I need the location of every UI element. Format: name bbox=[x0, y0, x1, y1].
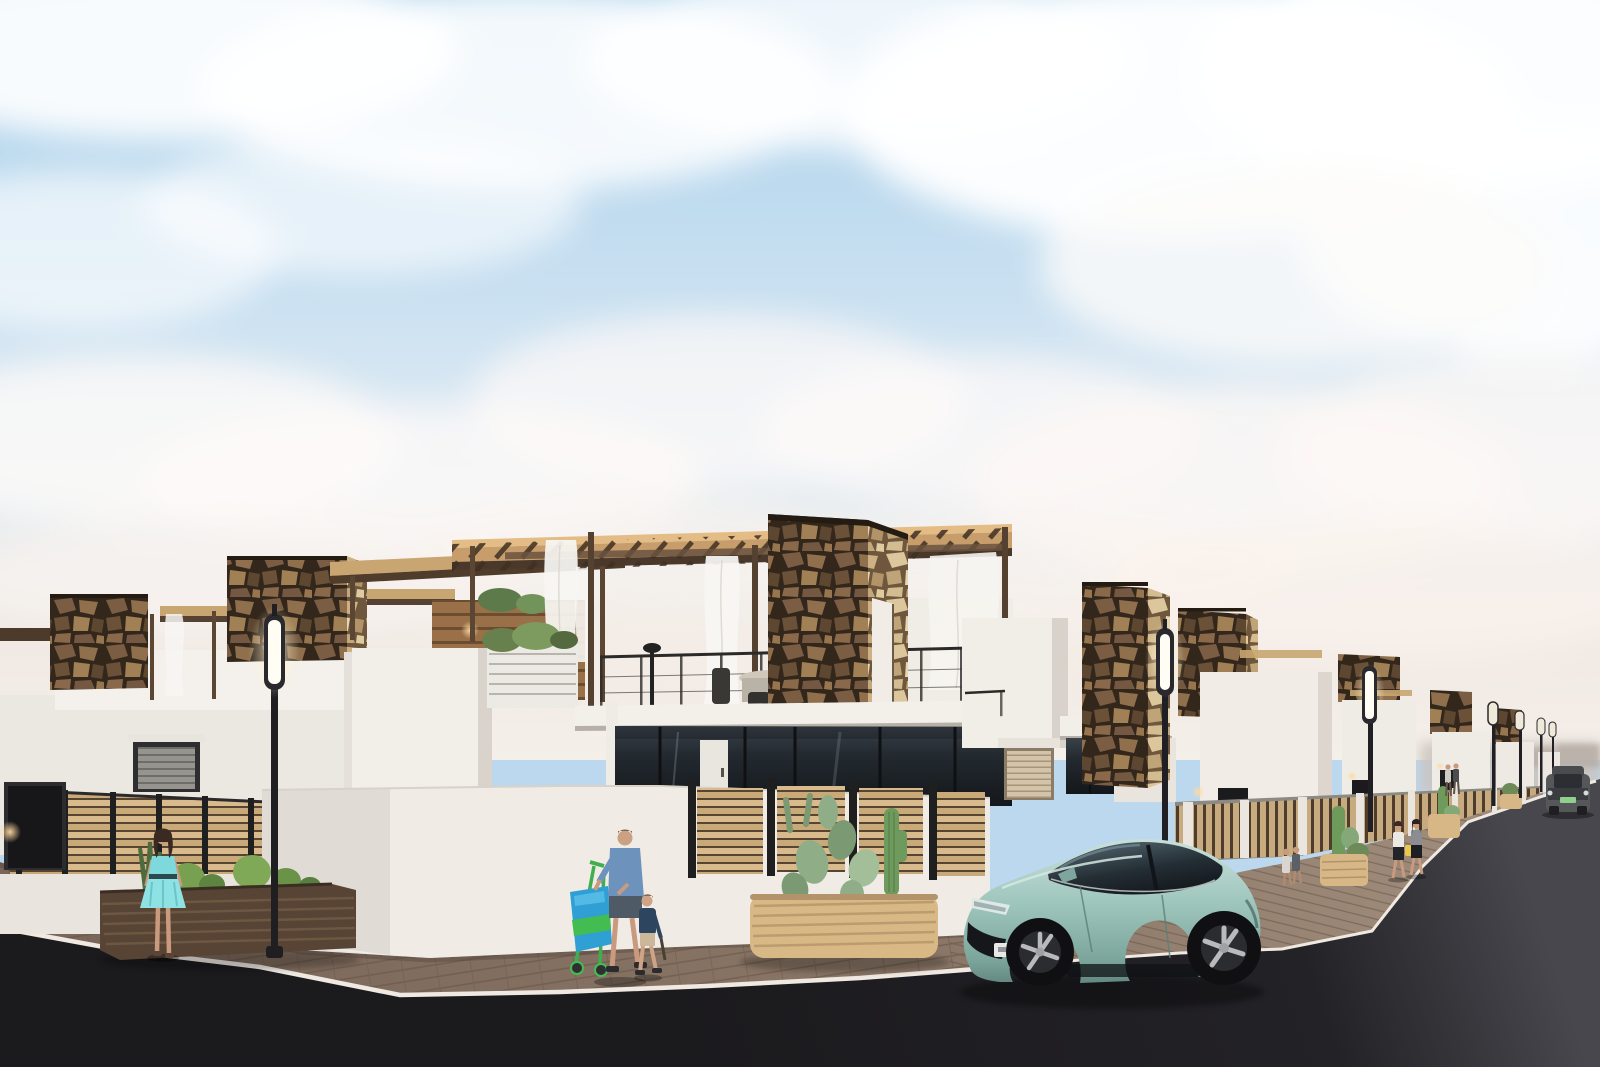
render-stage bbox=[0, 0, 1600, 1067]
car-rear-wheel bbox=[1187, 911, 1261, 985]
left-door bbox=[0, 782, 66, 870]
scene-canvas bbox=[0, 0, 1600, 1067]
right-garage-door bbox=[998, 738, 1060, 800]
left-garage-door bbox=[128, 734, 205, 792]
car-front-wheel bbox=[1006, 918, 1074, 986]
car bbox=[960, 839, 1264, 1009]
